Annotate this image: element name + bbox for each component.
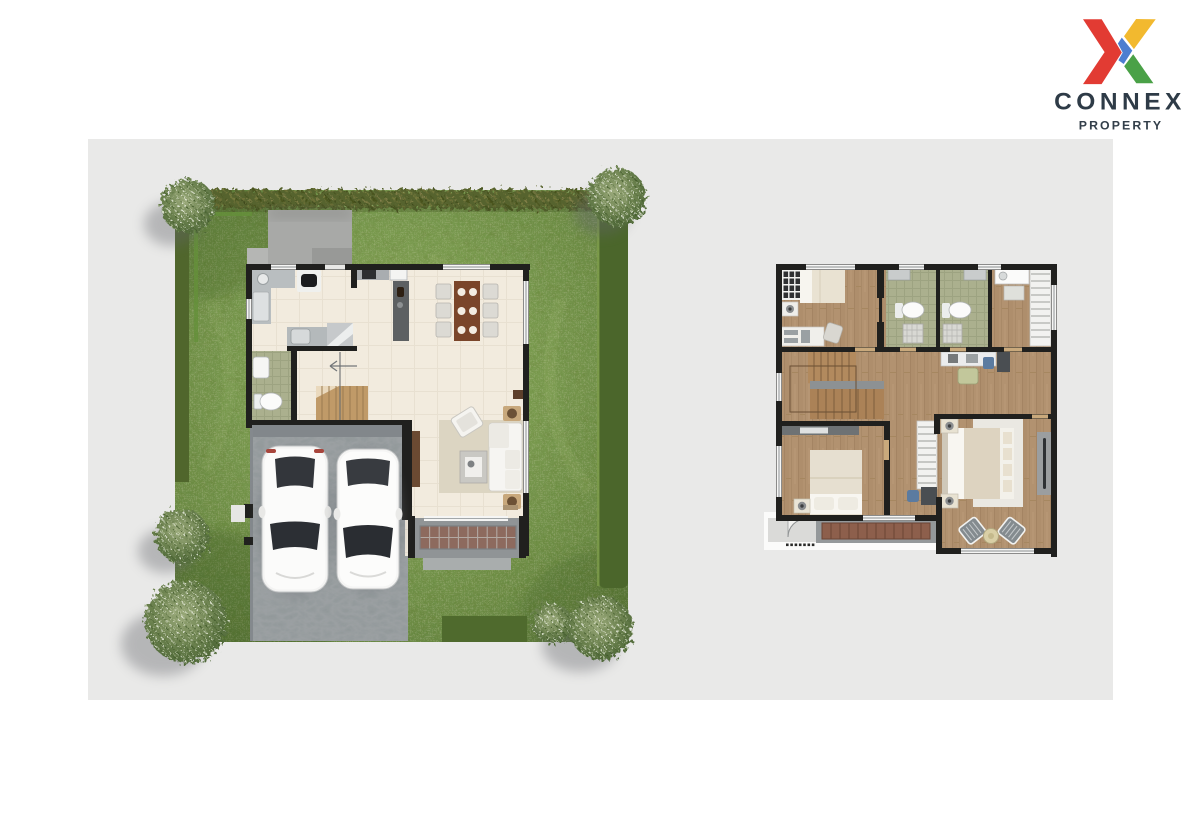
- svg-text:CONNEX: CONNEX: [1054, 89, 1186, 116]
- svg-text:PROPERTY: PROPERTY: [1079, 119, 1163, 133]
